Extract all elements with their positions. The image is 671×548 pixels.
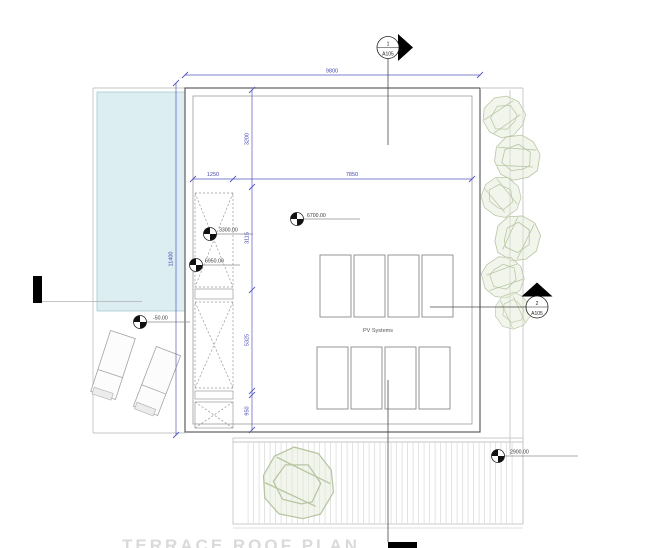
tree <box>480 93 529 142</box>
section-number: 1 <box>387 42 390 48</box>
section-arrow-icon <box>522 283 553 297</box>
sheet-title: TERRACE ROOF PLAN <box>122 536 360 548</box>
dim-seg-mid2: 5325 <box>245 334 251 346</box>
spot-elevation-value: 3300.00 <box>219 228 238 234</box>
pv-panel <box>351 347 382 409</box>
section-sheet: A105 <box>531 311 543 317</box>
lounge-chairs <box>90 331 180 418</box>
pv-panel <box>385 347 416 409</box>
pv-panel <box>422 255 453 317</box>
lounge-chair <box>90 331 135 402</box>
spot-elevation-value: 6950.00 <box>205 259 224 265</box>
dim-overall-height: 11400 <box>169 252 175 267</box>
spot-elevation-value: 2900.00 <box>510 450 529 456</box>
pv-panel <box>320 255 351 317</box>
pv-panel <box>317 347 348 409</box>
dim-seg-mid1: 3115 <box>245 232 251 244</box>
pv-panel <box>419 347 450 409</box>
tree <box>479 175 522 218</box>
lounge-chair <box>133 346 181 417</box>
pv-panel <box>388 255 419 317</box>
dim-main-width: 7850 <box>346 172 358 178</box>
dim-seg-bottom: 950 <box>245 406 251 415</box>
spot-elevation-pool-deck: -50.00 <box>134 316 191 329</box>
section-arrow-icon <box>398 34 413 61</box>
pv-systems-label: PV Systems <box>363 328 393 334</box>
spot-elevation-value: 6700.00 <box>307 213 326 219</box>
pool <box>97 92 186 311</box>
pv-panel <box>354 255 385 317</box>
dim-seg-top: 3200 <box>245 133 251 145</box>
section-sheet: A105 <box>382 52 394 58</box>
spot-elevation-value: -50.00 <box>153 316 168 322</box>
roof-plan-canvas: PV Systems 6700.00 3300.00 6950.00 -50. <box>0 0 671 548</box>
dim-overall-width: 9800 <box>326 69 338 75</box>
roof-plan-drawing: PV Systems 6700.00 3300.00 6950.00 -50. <box>0 0 671 548</box>
dim-left-offset: 1250 <box>207 172 219 178</box>
section-number: 2 <box>536 301 539 307</box>
